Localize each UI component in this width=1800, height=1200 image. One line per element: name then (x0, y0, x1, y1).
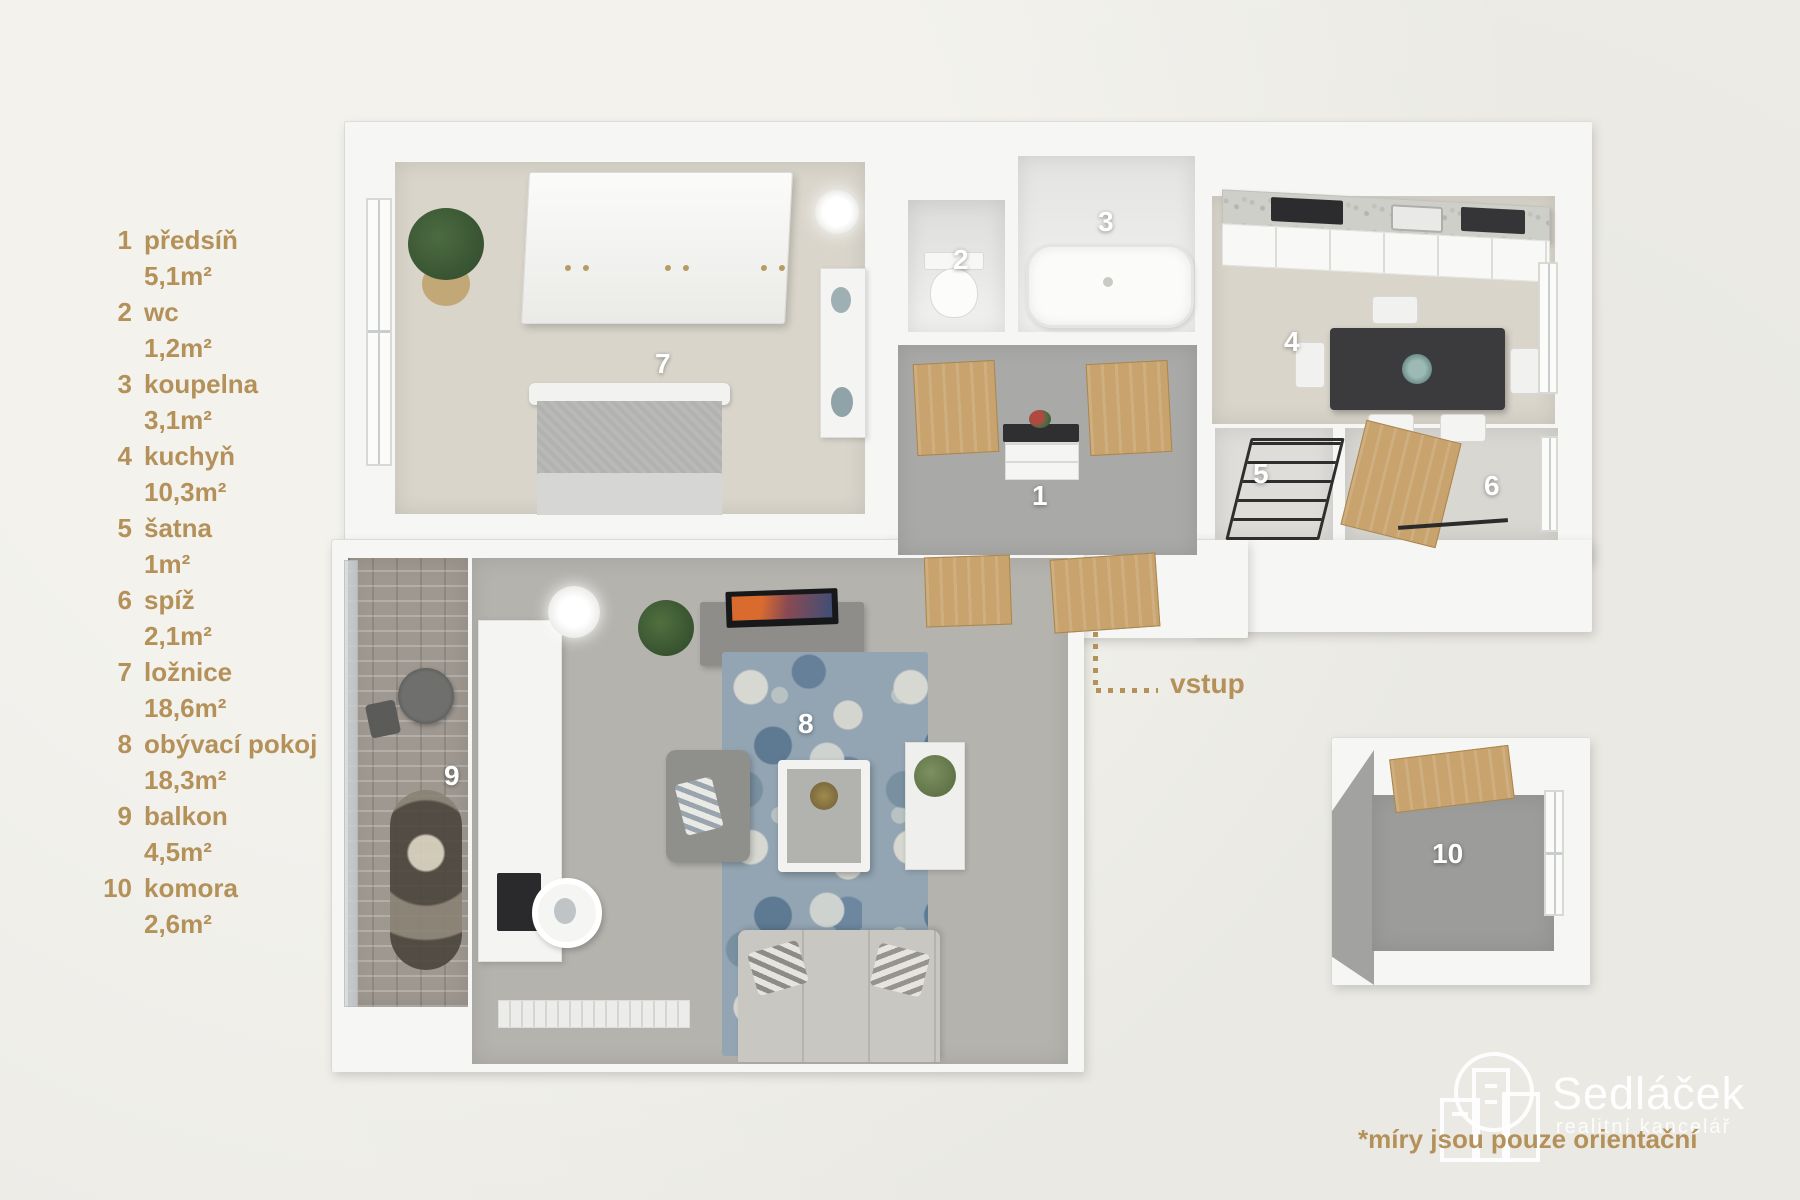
legend-area: 1m² (92, 546, 317, 582)
bedroom-dresser (820, 268, 866, 438)
legend-item: 1předsíň5,1m² (92, 222, 317, 294)
dining-table (1330, 328, 1505, 410)
legend-room-name: balkon (144, 801, 228, 831)
legend-area: 5,1m² (92, 258, 317, 294)
throw-pillow-icon (674, 776, 723, 836)
room-legend: 1předsíň5,1m² 2wc1,2m² 3koupelna3,1m² 4k… (92, 222, 317, 942)
tv-icon (725, 588, 838, 628)
room-number-koupelna: 3 (1098, 206, 1114, 238)
legend-area: 1,2m² (92, 330, 317, 366)
legend-area: 18,6m² (92, 690, 317, 726)
legend-item: 6spíž2,1m² (92, 582, 317, 654)
wardrobe (521, 172, 793, 324)
bathtub-icon (1026, 244, 1194, 328)
legend-room-name: šatna (144, 513, 212, 543)
table-plant-icon (810, 782, 838, 810)
room-number-komora: 10 (1432, 838, 1463, 870)
entrance-label: vstup (1170, 668, 1245, 700)
room-number-obyvaci-pokoj: 8 (798, 708, 814, 740)
living-room-radiator (498, 1000, 690, 1028)
legend-number: 5 (92, 510, 132, 546)
legend-area: 10,3m² (92, 474, 317, 510)
legend-room-name: komora (144, 873, 238, 903)
dining-chair (1440, 414, 1486, 442)
hallway-sideboard (1003, 424, 1079, 478)
wardrobe-handles (565, 265, 571, 271)
cooktop-icon (1271, 197, 1343, 225)
entrance-marker-line-vertical (1093, 632, 1098, 692)
legend-room-name: předsíň (144, 225, 238, 255)
legend-item: 8obývací pokoj18,3m² (92, 726, 317, 798)
legend-area: 18,3m² (92, 762, 317, 798)
legend-item: 7ložnice18,6m² (92, 654, 317, 726)
legend-number: 6 (92, 582, 132, 618)
dining-chair (1372, 296, 1418, 324)
legend-item: 4kuchyň10,3m² (92, 438, 317, 510)
legend-room-name: obývací pokoj (144, 729, 317, 759)
legend-room-name: koupelna (144, 369, 258, 399)
disclaimer-text: *míry jsou pouze orientační (1358, 1124, 1698, 1155)
komora-window (1544, 790, 1564, 916)
bedroom-window (366, 198, 392, 466)
legend-number: 8 (92, 726, 132, 762)
vase-flowers-icon (1029, 410, 1051, 428)
legend-number: 7 (92, 654, 132, 690)
hallway-door-wc (913, 360, 1000, 456)
room-number-loznice: 7 (655, 348, 671, 380)
legend-room-name: wc (144, 297, 179, 327)
legend-number: 3 (92, 366, 132, 402)
round-side-table (532, 878, 602, 948)
room-number-satna: 5 (1253, 458, 1269, 490)
floor-plan-page: 1předsíň5,1m² 2wc1,2m² 3koupelna3,1m² 4k… (0, 0, 1800, 1200)
oven-icon (1461, 207, 1525, 234)
flower-centerpiece-icon (1402, 354, 1432, 384)
side-table-plant (905, 742, 965, 870)
entrance-marker-line-horizontal (1096, 688, 1158, 693)
brand-name: Sedláček (1552, 1068, 1745, 1120)
spiz-window (1540, 436, 1558, 532)
legend-area: 2,1m² (92, 618, 317, 654)
kitchen-sink-icon (1391, 204, 1443, 233)
balcony-rug-icon (390, 790, 462, 970)
room-number-spiz: 6 (1484, 470, 1500, 502)
legend-item: 5šatna1m² (92, 510, 317, 582)
room-number-kuchyn: 4 (1284, 326, 1300, 358)
balcony-table-icon (398, 668, 454, 724)
legend-area: 2,6m² (92, 906, 317, 942)
legend-number: 4 (92, 438, 132, 474)
hallway-door-kitchen (1086, 360, 1173, 456)
kitchen-window (1538, 262, 1558, 394)
sofa (738, 930, 940, 1062)
floor-lamp-icon (548, 586, 600, 638)
walls-bottom-right-band (1195, 540, 1592, 632)
legend-number: 9 (92, 798, 132, 834)
room-komora-floor (1372, 795, 1554, 951)
legend-area: 4,5m² (92, 834, 317, 870)
bed (537, 385, 722, 515)
legend-item: 3koupelna3,1m² (92, 366, 317, 438)
coffee-table (778, 760, 870, 872)
balcony-glass-railing (344, 560, 358, 1007)
houseplant-icon (638, 600, 694, 656)
armchair (666, 750, 750, 862)
legend-room-name: spíž (144, 585, 195, 615)
room-number-wc: 2 (953, 244, 969, 276)
entrance-door (1050, 552, 1161, 633)
room-number-balkon: 9 (444, 760, 460, 792)
legend-item: 9balkon4,5m² (92, 798, 317, 870)
legend-item: 10komora2,6m² (92, 870, 317, 942)
dining-chair (1510, 348, 1540, 394)
living-room-door (924, 555, 1012, 628)
legend-room-name: ložnice (144, 657, 232, 687)
ceiling-lamp-icon (815, 190, 859, 234)
legend-room-name: kuchyň (144, 441, 235, 471)
potted-plant-icon (408, 222, 484, 298)
room-number-predsin: 1 (1032, 480, 1048, 512)
houseplant-icon (914, 755, 956, 797)
legend-area: 3,1m² (92, 402, 317, 438)
legend-number: 2 (92, 294, 132, 330)
striped-pillow-icon (869, 942, 930, 997)
striped-pillow-icon (747, 940, 809, 997)
legend-number: 1 (92, 222, 132, 258)
legend-item: 2wc1,2m² (92, 294, 317, 366)
legend-number: 10 (92, 870, 132, 906)
